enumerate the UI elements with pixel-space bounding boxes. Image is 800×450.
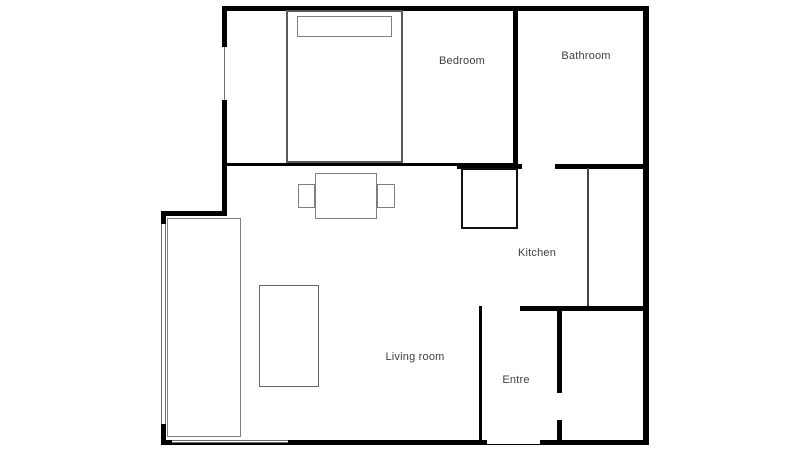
window-left-living-inner-line bbox=[165, 224, 166, 424]
pillow bbox=[297, 16, 392, 37]
outer-wall-left-upper bbox=[222, 6, 227, 216]
kitchen-label: Kitchen bbox=[518, 247, 556, 259]
kitchen-counter bbox=[587, 168, 589, 306]
wall-entre-left bbox=[479, 306, 482, 440]
window-left-living-outer-line bbox=[161, 224, 162, 424]
dining-chair-right bbox=[377, 184, 395, 208]
entre-label: Entre bbox=[502, 374, 529, 386]
wall-kitchen-entre bbox=[520, 306, 649, 311]
coffee-table bbox=[259, 285, 319, 387]
dining-chair-left bbox=[298, 184, 315, 208]
window-bottom-outer-line bbox=[172, 440, 288, 441]
entrance-door-opening bbox=[487, 440, 540, 444]
wall-bathroom-bottom-right bbox=[555, 164, 649, 169]
bedroom-label: Bedroom bbox=[439, 55, 485, 67]
window-bottom-inner-line bbox=[172, 442, 288, 443]
window-left-bedroom-pane-line bbox=[224, 47, 225, 100]
dining-table bbox=[315, 173, 377, 219]
floor-plan: Bedroom Bathroom Kitchen Living room Ent… bbox=[0, 0, 800, 450]
outer-wall-right bbox=[643, 6, 649, 445]
outer-wall-step bbox=[161, 211, 227, 216]
bathroom-label: Bathroom bbox=[561, 50, 610, 62]
wall-closet-upper bbox=[557, 311, 562, 393]
kitchen-appliance bbox=[461, 168, 518, 229]
wardrobe bbox=[167, 218, 241, 437]
living-room-label: Living room bbox=[385, 351, 444, 363]
wall-bedroom-bathroom bbox=[513, 6, 518, 169]
wall-closet-lower bbox=[557, 420, 562, 440]
